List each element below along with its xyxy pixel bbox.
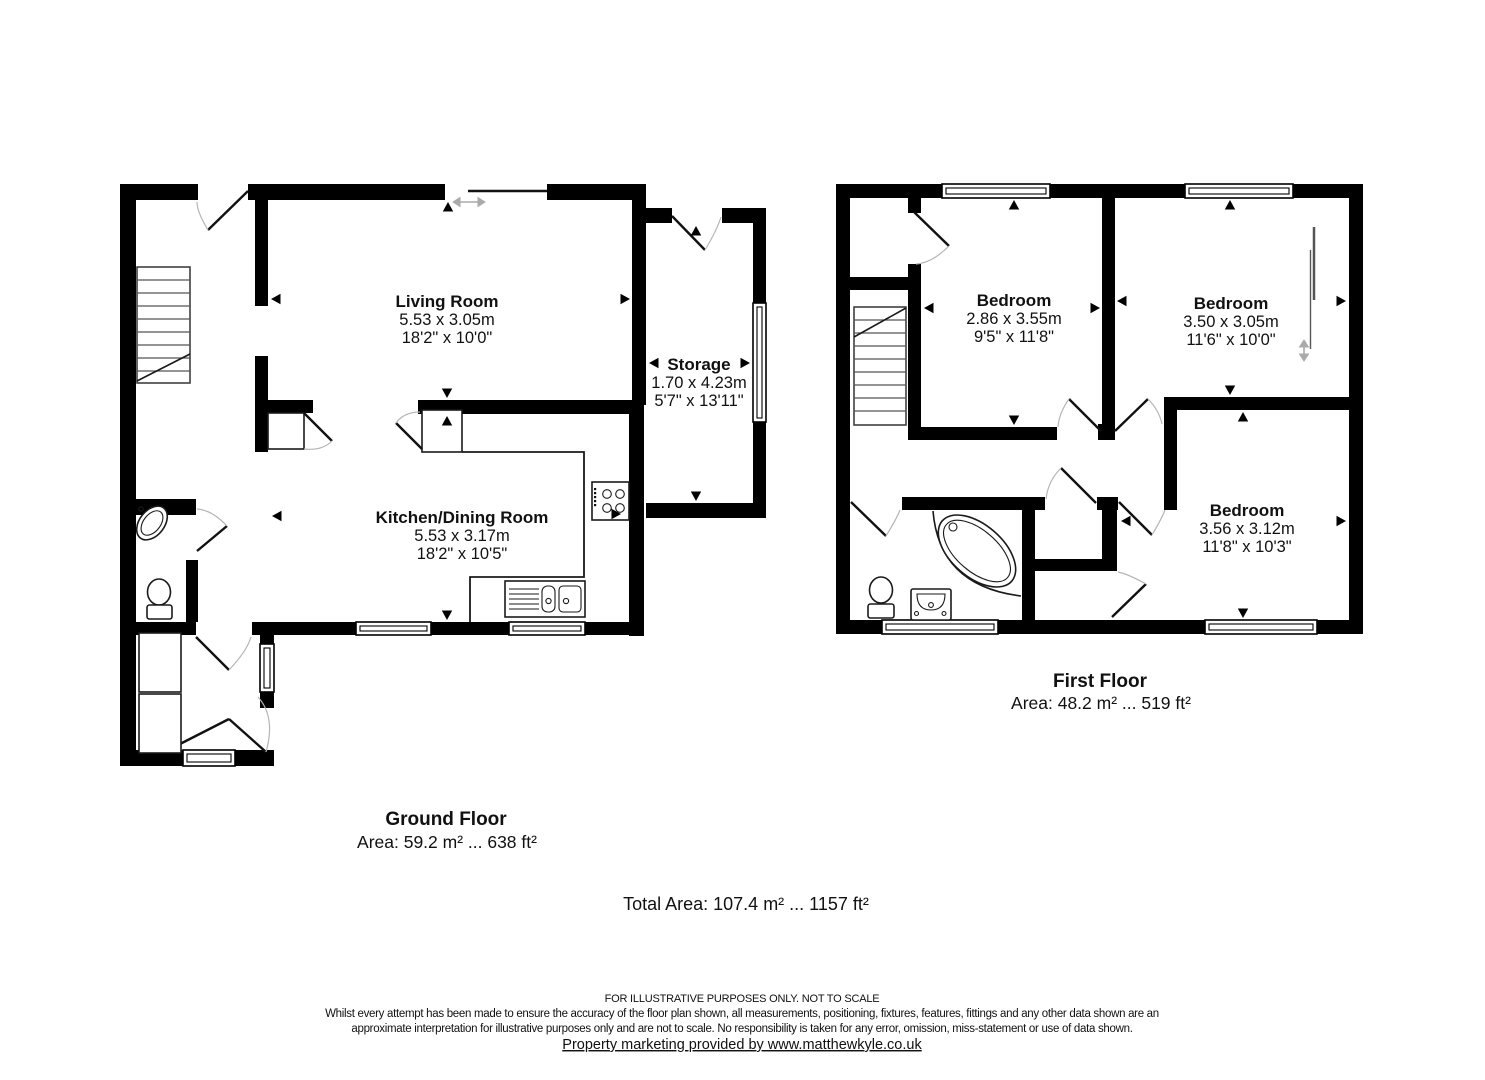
- door-bedroom1: [1058, 399, 1101, 431]
- door-landing-top: [914, 212, 949, 264]
- ground-floor-caption: Ground Floor Area: 59.2 m² ... 638 ft²: [357, 809, 537, 852]
- window-entrance-side: [260, 644, 274, 692]
- kitchen-sink: [505, 581, 585, 617]
- marketing-link[interactable]: Property marketing provided by www.matth…: [562, 1037, 922, 1053]
- window-bedroom1: [942, 184, 1050, 198]
- bedroom2-label: Bedroom 3.50 x 3.05m 11'6" x 10'0": [1183, 294, 1278, 349]
- bedroom3-name: Bedroom: [1210, 501, 1285, 520]
- entrance-closets: [139, 633, 181, 753]
- first-floor-walls: [836, 184, 1363, 634]
- ground-floor-area: Area: 59.2 m² ... 638 ft²: [357, 832, 537, 852]
- living-room-metric: 5.53 x 3.05m: [399, 311, 494, 329]
- staircase-first: [854, 307, 906, 425]
- bedroom2-name: Bedroom: [1194, 294, 1269, 313]
- door-hall-upper: [1046, 468, 1096, 503]
- bedroom1-metric: 2.86 x 3.55m: [966, 310, 1061, 328]
- cupboard-under-stairs: [268, 413, 332, 449]
- first-floor-plan: Bedroom 2.86 x 3.55m 9'5" x 11'8" Bedroo…: [836, 184, 1363, 634]
- bathroom-toilet: [868, 577, 894, 618]
- bedroom1-imperial: 9'5" x 11'8": [974, 328, 1054, 346]
- corner-bath: [925, 501, 1029, 601]
- bedroom3-imperial: 11'8" x 10'3": [1202, 538, 1291, 556]
- window-kitchen-1: [356, 622, 431, 635]
- door-bedroom2: [1115, 399, 1162, 431]
- first-floor-caption: First Floor Area: 48.2 m² ... 519 ft²: [1011, 671, 1191, 713]
- disclaimer-line3: approximate interpretation for illustrat…: [351, 1023, 1132, 1035]
- wc-toilet: [147, 579, 172, 619]
- door-hall-to-entrance: [196, 637, 251, 670]
- first-floor-title: First Floor: [1053, 671, 1148, 692]
- kitchen-imperial: 18'2" x 10'5": [417, 545, 508, 563]
- patio-door-opening: [453, 191, 547, 207]
- bedroom2-imperial: 11'6" x 10'0": [1186, 331, 1275, 349]
- window-bathroom: [882, 620, 998, 634]
- kitchen-metric: 5.53 x 3.17m: [414, 527, 509, 545]
- kitchen-name: Kitchen/Dining Room: [376, 508, 549, 527]
- living-room-name: Living Room: [396, 292, 499, 311]
- bedroom2-metric: 3.50 x 3.05m: [1183, 313, 1278, 331]
- updown-arrow-icon: [1300, 340, 1309, 361]
- bedroom3-label: Bedroom 3.56 x 3.12m 11'8" x 10'3": [1199, 501, 1294, 556]
- floorplan-page: Living Room 5.53 x 3.05m 18'2" x 10'0" S…: [0, 0, 1485, 1080]
- door-living-kitchen: [396, 410, 462, 452]
- window-kitchen-2: [509, 622, 585, 635]
- kitchen-dining-label: Kitchen/Dining Room 5.53 x 3.17m 18'2" x…: [376, 508, 549, 563]
- bedroom2-wardrobe-lines: [1300, 227, 1315, 361]
- disclaimer-line2: Whilst every attempt has been made to en…: [325, 1008, 1159, 1020]
- door-entrance-double: [171, 695, 270, 752]
- door-hall-lower: [1112, 572, 1146, 617]
- total-area: Total Area: 107.4 m² ... 1157 ft²: [623, 894, 869, 914]
- window-entrance-bottom: [183, 750, 235, 766]
- staircase-ground: [137, 267, 190, 383]
- storage-name: Storage: [667, 355, 730, 374]
- footer-disclaimer: FOR ILLUSTRATIVE PURPOSES ONLY. NOT TO S…: [325, 993, 1159, 1053]
- door-wc: [197, 509, 227, 551]
- door-hall-front: [197, 191, 248, 230]
- floorplan-canvas: Living Room 5.53 x 3.05m 18'2" x 10'0" S…: [0, 0, 1485, 1080]
- ground-floor-title: Ground Floor: [385, 809, 507, 830]
- bedroom3-metric: 3.56 x 3.12m: [1199, 520, 1294, 538]
- stove-hob: [592, 482, 629, 520]
- ground-floor-walls: [120, 184, 766, 766]
- ground-floor-plan: Living Room 5.53 x 3.05m 18'2" x 10'0" S…: [120, 184, 766, 766]
- disclaimer-line1: FOR ILLUSTRATIVE PURPOSES ONLY. NOT TO S…: [605, 993, 880, 1005]
- storage-imperial: 5'7" x 13'11": [654, 392, 743, 410]
- storage-metric: 1.70 x 4.23m: [651, 374, 746, 392]
- living-room-label: Living Room 5.53 x 3.05m 18'2" x 10'0": [396, 292, 499, 347]
- window-bedroom2: [1185, 184, 1293, 198]
- window-storage: [753, 303, 766, 422]
- bedroom1-name: Bedroom: [977, 291, 1052, 310]
- storage-label: Storage 1.70 x 4.23m 5'7" x 13'11": [651, 355, 746, 410]
- bathroom-basin: [911, 589, 951, 620]
- bedroom1-label: Bedroom 2.86 x 3.55m 9'5" x 11'8": [966, 291, 1061, 346]
- window-bedroom3: [1205, 620, 1317, 634]
- living-room-imperial: 18'2" x 10'0": [402, 329, 493, 347]
- first-floor-area: Area: 48.2 m² ... 519 ft²: [1011, 693, 1191, 713]
- slide-arrow-icon: [453, 198, 485, 207]
- door-bathroom: [851, 502, 900, 536]
